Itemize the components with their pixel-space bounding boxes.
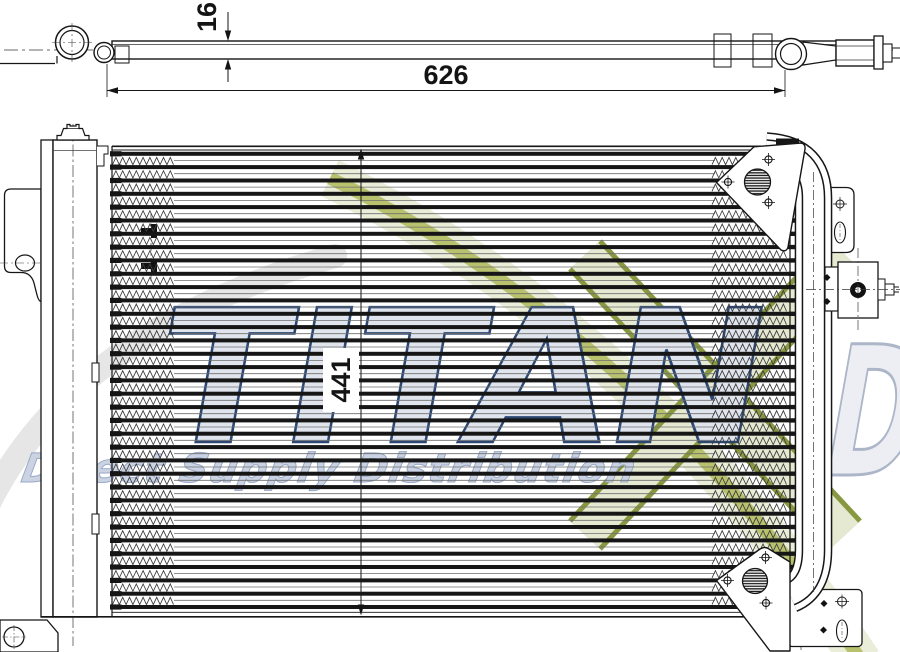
core-tube	[112, 166, 790, 169]
core-tube	[112, 366, 790, 369]
tube-end-left	[111, 298, 122, 302]
core-tube	[112, 379, 790, 382]
tube-end-left	[111, 592, 122, 596]
tube-end-left	[111, 565, 122, 569]
fin-zigzag-left	[113, 557, 174, 564]
tube-end-left	[111, 432, 122, 436]
tube-end-left	[111, 485, 122, 489]
tube-end-left	[111, 258, 122, 262]
profile-bar	[112, 41, 856, 59]
tube-end-left	[111, 178, 122, 182]
tube-end-left	[111, 512, 122, 516]
core-tube	[112, 419, 790, 422]
tube-end-left	[111, 498, 122, 502]
tube-end-left	[111, 538, 122, 542]
core-tube	[112, 579, 790, 582]
core-tube	[112, 339, 790, 342]
core-tube	[112, 312, 790, 315]
core-tube	[112, 526, 790, 529]
tube-end-left	[111, 352, 122, 356]
tube-end-left	[111, 472, 122, 476]
filler-cap	[57, 125, 89, 141]
core-tube	[112, 606, 790, 609]
fin-zigzag-left	[113, 251, 174, 258]
fin-zigzag-left	[113, 157, 174, 164]
profile-foot	[0, 56, 57, 64]
tube-end-left	[111, 525, 122, 529]
profile-connector-cap	[874, 36, 883, 69]
core-tube	[112, 432, 790, 435]
core-tube	[112, 406, 790, 409]
tank-stub-upper	[92, 363, 99, 382]
core-tube	[112, 179, 790, 182]
core-tube	[112, 219, 790, 222]
core-tube	[112, 152, 790, 155]
tank-top-step	[97, 146, 108, 166]
fin-zigzag-left	[113, 237, 174, 244]
left-side-plate	[41, 140, 53, 617]
core-tube	[112, 352, 790, 355]
core-tubes-and-fins	[111, 152, 798, 609]
core-tube	[112, 459, 790, 462]
tube-end-left	[111, 458, 122, 462]
bracket-hatched-hole-bottom	[743, 569, 768, 594]
core-tube	[112, 259, 790, 262]
fin-zigzag-left	[113, 517, 174, 524]
tank-stub-lower	[92, 514, 99, 534]
bracket-hatched-hole-top	[745, 169, 771, 195]
tube-end-left	[111, 418, 122, 422]
bracket-triangle-bottom-right	[717, 548, 791, 652]
tube-end-left	[111, 338, 122, 342]
core-tube	[112, 272, 790, 275]
tube-end-left	[111, 378, 122, 382]
tube-end-left	[111, 272, 122, 276]
tube-end-left	[111, 605, 122, 609]
technical-drawing-page: TITAN Direct Supply Distribution DS	[0, 0, 900, 652]
tube-end-left	[111, 165, 122, 169]
core-tube	[112, 472, 790, 475]
tube-end-left	[111, 405, 122, 409]
bracket-top-left	[5, 189, 42, 302]
profile-lobe	[803, 42, 836, 65]
core-tube	[112, 499, 790, 502]
tube-end-left	[111, 192, 122, 196]
fin-zigzag-left	[113, 211, 174, 218]
core-tube	[112, 592, 790, 595]
profile-connector-body	[836, 40, 874, 66]
tube-end-left	[111, 245, 122, 249]
profile-connector-stub	[883, 44, 892, 62]
core-tube	[112, 232, 790, 235]
tube-end-left	[111, 312, 122, 316]
tube-end-left	[111, 325, 122, 329]
core-tube	[112, 539, 790, 542]
tube-end-left	[111, 152, 122, 156]
core-tube	[112, 286, 790, 289]
tube-end-left	[111, 445, 122, 449]
fin-zigzag-left	[113, 544, 174, 551]
fin-zigzag-left	[113, 291, 174, 298]
core-tube	[112, 486, 790, 489]
core-tube	[112, 326, 790, 329]
core-tube	[112, 552, 790, 555]
fin-zigzag-left	[113, 571, 174, 578]
top-profile-view: 16 626	[0, 2, 900, 97]
tube-end-left	[111, 552, 122, 556]
core-tube	[112, 446, 790, 449]
fin-zigzag-left	[113, 304, 174, 311]
core-tube	[112, 206, 790, 209]
condenser-technical-drawing: TITAN Direct Supply Distribution DS	[0, 0, 900, 652]
fin-zigzag-left	[113, 597, 174, 604]
tube-end-left	[111, 578, 122, 582]
fin-zigzag-left	[113, 531, 174, 538]
core-tube	[112, 512, 790, 515]
tube-end-left	[111, 232, 122, 236]
overall-width-label: 626	[423, 60, 468, 90]
core-height-label: 441	[326, 357, 356, 402]
fin-zigzag-left	[113, 171, 174, 178]
dimension-overall-width: 626	[107, 60, 785, 97]
fin-zigzag-left	[113, 584, 174, 591]
core-tube	[112, 246, 790, 249]
fin-zigzag-left	[113, 277, 174, 284]
tube-end-left	[111, 365, 122, 369]
core-tube	[112, 392, 790, 395]
fin-zigzag-left	[113, 504, 174, 511]
core-tube	[112, 299, 790, 302]
fin-zigzag-left	[113, 197, 174, 204]
left-tank	[53, 140, 97, 617]
tube-end-left	[111, 285, 122, 289]
fin-zigzag-left	[113, 184, 174, 191]
thickness-label: 16	[192, 2, 222, 32]
fin-zigzag-right	[712, 251, 787, 258]
core-tube	[112, 566, 790, 569]
tube-end-left	[111, 218, 122, 222]
core-tube	[112, 192, 790, 195]
tube-end-left	[111, 205, 122, 209]
tube-end-left	[111, 392, 122, 396]
